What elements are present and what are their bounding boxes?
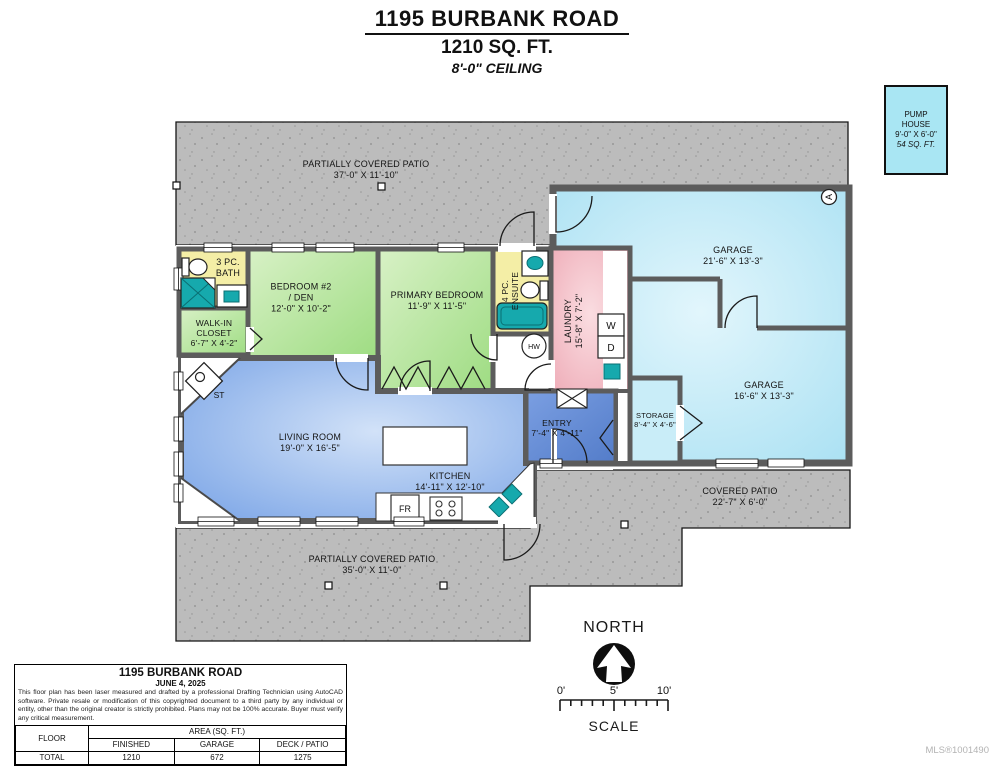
room-name: 3 PC. (216, 257, 240, 268)
room-dims: 15'-8" X 7'-2" (574, 294, 585, 349)
hot-water-label: HW (528, 344, 540, 351)
room-dims: 22'-7" X 6'-0" (702, 497, 777, 508)
ensuite-toilet-icon (521, 282, 539, 298)
post-icon (173, 182, 180, 189)
label-storage: STORAGE 8'-4" X 4'-6" (634, 411, 676, 429)
info-title: 1195 BURBANK ROAD (15, 665, 346, 679)
room-name: PRIMARY BEDROOM (391, 290, 484, 301)
shower-icon (181, 278, 215, 308)
kitchen-island (383, 427, 467, 465)
room-dims: 16'-6" X 13'-3" (734, 391, 794, 402)
laundry-sink-icon (604, 364, 620, 379)
scale-tick-5: 5' (610, 685, 618, 697)
ensuite-toilet-tank-icon (540, 281, 548, 300)
table-total-deck: 1275 (260, 752, 346, 765)
toilet-bowl-icon (189, 259, 207, 275)
label-patio-bottom: PARTIALLY COVERED PATIO 35'-0" X 11'-0" (309, 554, 436, 576)
room-dims: 35'-0" X 11'-0" (309, 565, 436, 576)
vanity-sink-icon (224, 291, 239, 302)
label-garage-lower: GARAGE 16'-6" X 13'-3" (734, 380, 794, 402)
north-compass-icon (593, 643, 635, 685)
post-icon (378, 183, 385, 190)
room-dims: 14'-11" X 12'-10" (415, 482, 485, 493)
room-name: GARAGE (703, 245, 763, 256)
label-walk-in-closet: WALK-IN CLOSET 6'-7" X 4'-2" (191, 318, 238, 348)
room-name: ENTRY (531, 418, 582, 428)
mls-watermark: MLS®1001490 (925, 745, 989, 756)
table-total-finished: 1210 (89, 752, 175, 765)
scale-tick-0: 0' (557, 685, 565, 697)
label-covered-patio: COVERED PATIO 22'-7" X 6'-0" (702, 486, 777, 508)
table-area-header: AREA (SQ. FT.) (89, 726, 346, 739)
info-disclaimer: This floor plan has been laser measured … (15, 688, 346, 725)
post-icon (621, 521, 628, 528)
label-primary-bedroom: PRIMARY BEDROOM 11'-9" X 11'-5" (391, 290, 484, 312)
room-dims: 8'-4" X 4'-6" (634, 420, 676, 429)
room-dims: 11'-9" X 11'-5" (391, 301, 484, 312)
room-name: BEDROOM #2 (270, 282, 331, 293)
table-total-label: TOTAL (16, 752, 89, 765)
room-name: LIVING ROOM (279, 432, 341, 443)
floor-plan-svg: W D HW ST FR A 0' 5' 10' (0, 0, 994, 768)
wood-stove-label: ST (214, 390, 225, 400)
scale-bar (560, 700, 668, 711)
attic-access-label: A (824, 194, 834, 200)
post-icon (325, 582, 332, 589)
scale-tick-10: 10' (657, 685, 671, 697)
table-col-garage: GARAGE (174, 739, 260, 752)
room-dims: 6'-7" X 4'-2" (191, 338, 238, 348)
table-floor-header: FLOOR (16, 726, 89, 752)
north-label: NORTH (583, 619, 645, 637)
label-bedroom2: BEDROOM #2 / DEN 12'-0" X 10'-2" (270, 282, 331, 315)
label-bath: 3 PC. BATH (216, 257, 240, 279)
toilet-tank-icon (182, 258, 189, 276)
label-kitchen: KITCHEN 14'-11" X 12'-10" (415, 471, 485, 493)
room-name2: BATH (216, 268, 240, 279)
washer-label: W (606, 321, 616, 332)
room-name: STORAGE (634, 411, 676, 420)
room-name: PARTIALLY COVERED PATIO (303, 159, 430, 170)
stove-burners-icon (430, 497, 462, 520)
room-name: KITCHEN (415, 471, 485, 482)
label-garage-upper: GARAGE 21'-6" X 13'-3" (703, 245, 763, 267)
room-name: PARTIALLY COVERED PATIO (309, 554, 436, 565)
post-icon (440, 582, 447, 589)
dryer-label: D (607, 343, 614, 354)
scale-label: SCALE (589, 718, 640, 734)
room-name: GARAGE (734, 380, 794, 391)
fridge-label: FR (399, 504, 411, 514)
label-patio-top: PARTIALLY COVERED PATIO 37'-0" X 11'-10" (303, 159, 430, 181)
table-col-finished: FINISHED (89, 739, 175, 752)
area-table: FLOOR AREA (SQ. FT.) FINISHED GARAGE DEC… (15, 725, 346, 765)
room-name: COVERED PATIO (702, 486, 777, 497)
room-name: WALK-IN (191, 318, 238, 328)
room-dims: 19'-0" X 16'-5" (279, 443, 341, 454)
room-dims: 7'-4" X 4'-11" (531, 428, 582, 438)
label-entry: ENTRY 7'-4" X 4'-11" (531, 418, 582, 438)
room-dims: 12'-0" X 10'-2" (270, 304, 331, 315)
room-name2: / DEN (270, 293, 331, 304)
room-name2: CLOSET (191, 328, 238, 338)
floor-plan-page: 1195 BURBANK ROAD 1210 SQ. FT. 8'-0" CEI… (0, 0, 994, 768)
table-total-garage: 672 (174, 752, 260, 765)
room-name: 4 PC. (500, 272, 510, 310)
label-ensuite: 4 PC. ENSUITE (500, 272, 520, 310)
room-dims: 37'-0" X 11'-10" (303, 170, 430, 181)
label-living-room: LIVING ROOM 19'-0" X 16'-5" (279, 432, 341, 454)
room-dims: 21'-6" X 13'-3" (703, 256, 763, 267)
info-box: 1195 BURBANK ROAD JUNE 4, 2025 This floo… (14, 664, 347, 766)
ensuite-sink-icon (527, 257, 543, 270)
table-col-deck: DECK / PATIO (260, 739, 346, 752)
room-name2: ENSUITE (510, 272, 520, 310)
chase-icon (557, 389, 587, 408)
label-laundry: LAUNDRY 15'-8" X 7'-2" (563, 294, 585, 349)
info-date: JUNE 4, 2025 (15, 679, 346, 688)
room-name: LAUNDRY (563, 294, 574, 349)
